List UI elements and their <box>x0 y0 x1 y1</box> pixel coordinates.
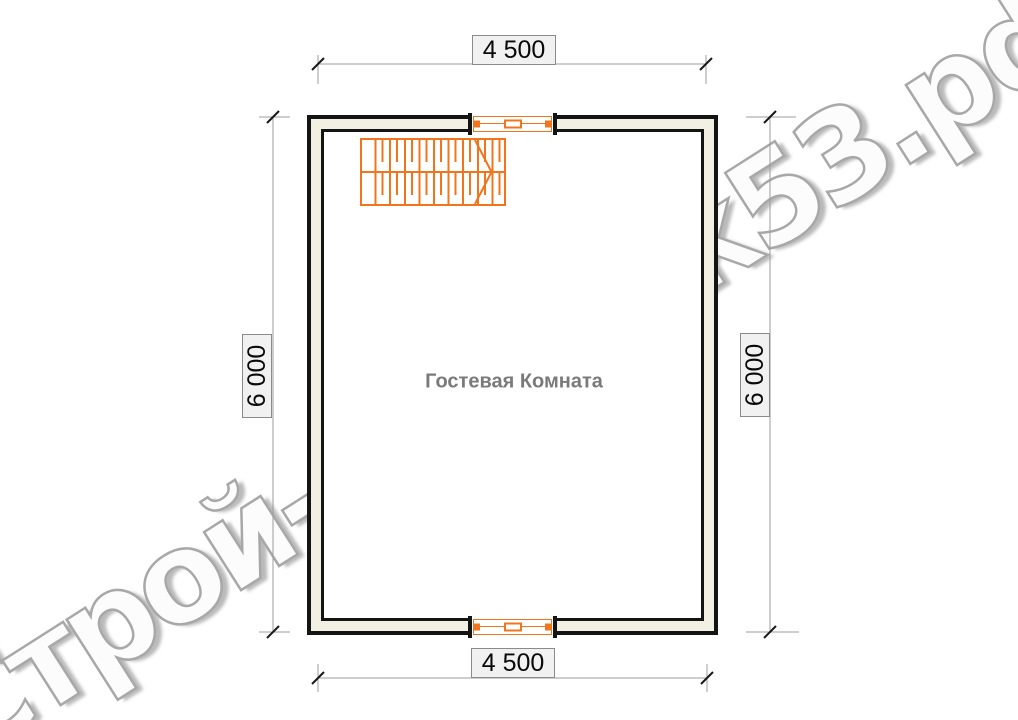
room-name-label: Гостевая Комната <box>425 371 603 394</box>
staircase <box>360 138 506 206</box>
stair-break-line-icon <box>362 140 504 204</box>
window-frame-icon <box>473 619 552 635</box>
dimension-label-bottom: 4 500 <box>471 648 555 678</box>
wall-end-cap <box>553 113 557 135</box>
wall-end-cap <box>553 616 557 638</box>
dimension-label-right: 6 000 <box>740 333 770 417</box>
wall-end-cap <box>468 616 472 638</box>
wall-end-cap <box>468 113 472 135</box>
window-bottom <box>468 616 557 638</box>
dimension-label-top: 4 500 <box>472 35 556 65</box>
floor-plan-canvas: Строй-Дачник53.рф <box>0 0 1018 720</box>
window-frame-icon <box>473 116 552 132</box>
dimension-label-left: 6 000 <box>242 334 272 418</box>
window-top <box>468 113 557 135</box>
